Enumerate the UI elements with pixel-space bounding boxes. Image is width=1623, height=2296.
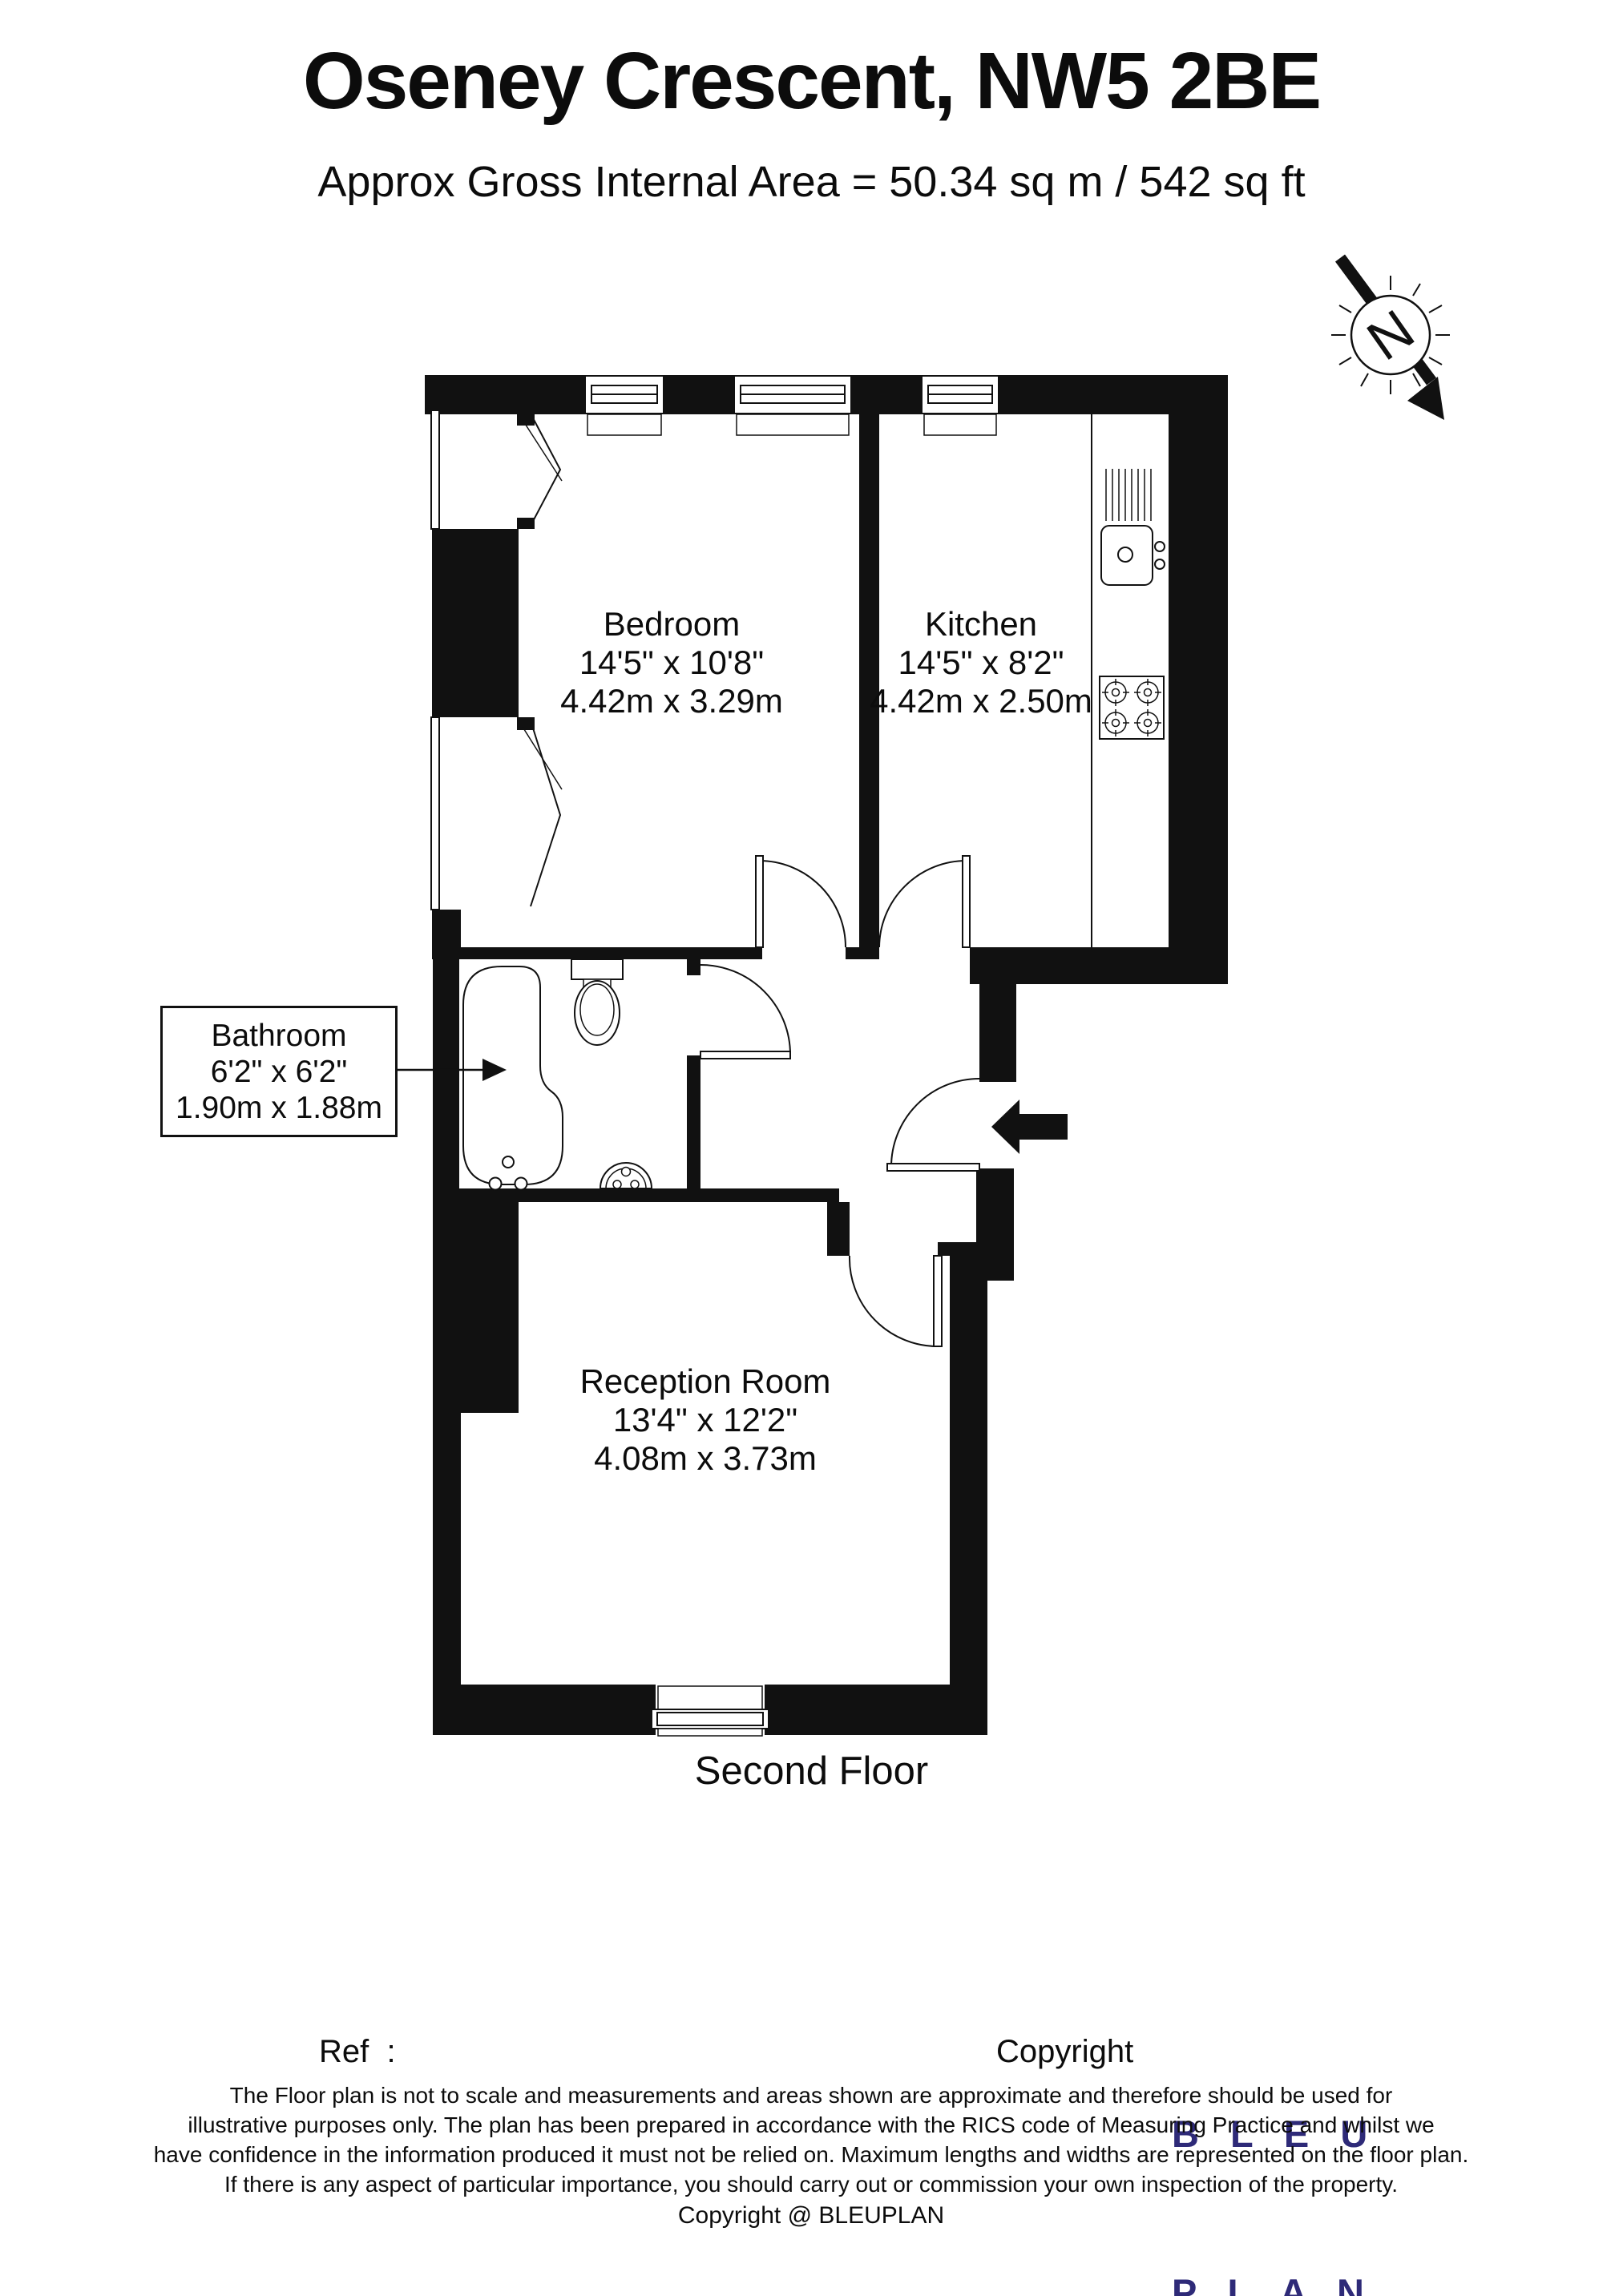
kitchen-label: Kitchen 14'5" x 8'2" 4.42m x 2.50m (870, 605, 1092, 720)
washbasin-icon (600, 1163, 652, 1188)
bedroom-label: Bedroom 14'5" x 10'8" 4.42m x 3.29m (560, 605, 783, 720)
bathroom-dims-metric: 1.90m x 1.88m (163, 1090, 395, 1126)
disclaimer-line: illustrative purposes only. The plan has… (50, 2110, 1573, 2140)
bathroom-label-box: Bathroom 6'2" x 6'2" 1.90m x 1.88m (160, 1006, 398, 1137)
bedroom-dims-imperial: 14'5" x 10'8" (560, 644, 783, 682)
disclaimer-line: If there is any aspect of particular imp… (50, 2169, 1573, 2199)
bedroom-dims-metric: 4.42m x 3.29m (560, 682, 783, 720)
door-bathroom (700, 965, 790, 1059)
north-compass: N (1331, 258, 1450, 420)
toilet-icon (571, 959, 623, 1045)
floorplan-page: Oseney Crescent, NW5 2BE Approx Gross In… (0, 0, 1623, 2296)
kitchen-sink-icon (1101, 526, 1165, 585)
ref-label: Ref : (319, 2034, 396, 2070)
window-bedroom-left-lower (431, 717, 562, 910)
kitchen-dims-imperial: 14'5" x 8'2" (870, 644, 1092, 682)
window-bedroom-left-upper (431, 410, 562, 529)
door-entry (887, 1079, 979, 1171)
bathroom-dims-imperial: 6'2" x 6'2" (163, 1054, 395, 1090)
floorplan-drawing: N (0, 0, 1623, 2296)
door-reception (850, 1256, 942, 1346)
kitchen-name: Kitchen (870, 605, 1092, 644)
copyright-line: Copyright @ BLEUPLAN (50, 2202, 1573, 2229)
window-kitchen-top (922, 376, 999, 435)
copyright-label: Copyright (996, 2034, 1133, 2070)
floor-label: Second Floor (0, 1749, 1623, 1794)
window-bedroom-right-top (734, 376, 851, 435)
logo-line-2: P L A N (1172, 2266, 1380, 2296)
window-bedroom-left-top (585, 376, 664, 435)
kitchen-dims-metric: 4.42m x 2.50m (870, 682, 1092, 720)
reception-dims-metric: 4.08m x 3.73m (580, 1439, 831, 1478)
entrance-arrow-icon (991, 1100, 1068, 1154)
kitchen-hob-icon (1100, 676, 1164, 739)
door-bedroom (756, 856, 846, 947)
disclaimer-line: The Floor plan is not to scale and measu… (50, 2080, 1573, 2110)
kitchen-drainer-icon (1106, 469, 1151, 521)
disclaimer: The Floor plan is not to scale and measu… (50, 2080, 1573, 2199)
door-kitchen (879, 856, 970, 947)
bathroom-name: Bathroom (163, 1018, 395, 1054)
bedroom-name: Bedroom (560, 605, 783, 644)
disclaimer-line: have confidence in the information produ… (50, 2140, 1573, 2169)
reception-dims-imperial: 13'4" x 12'2" (580, 1401, 831, 1439)
reception-label: Reception Room 13'4" x 12'2" 4.08m x 3.7… (580, 1362, 831, 1478)
bathtub-icon (463, 966, 563, 1190)
window-reception-bottom (652, 1685, 769, 1736)
reception-name: Reception Room (580, 1362, 831, 1401)
